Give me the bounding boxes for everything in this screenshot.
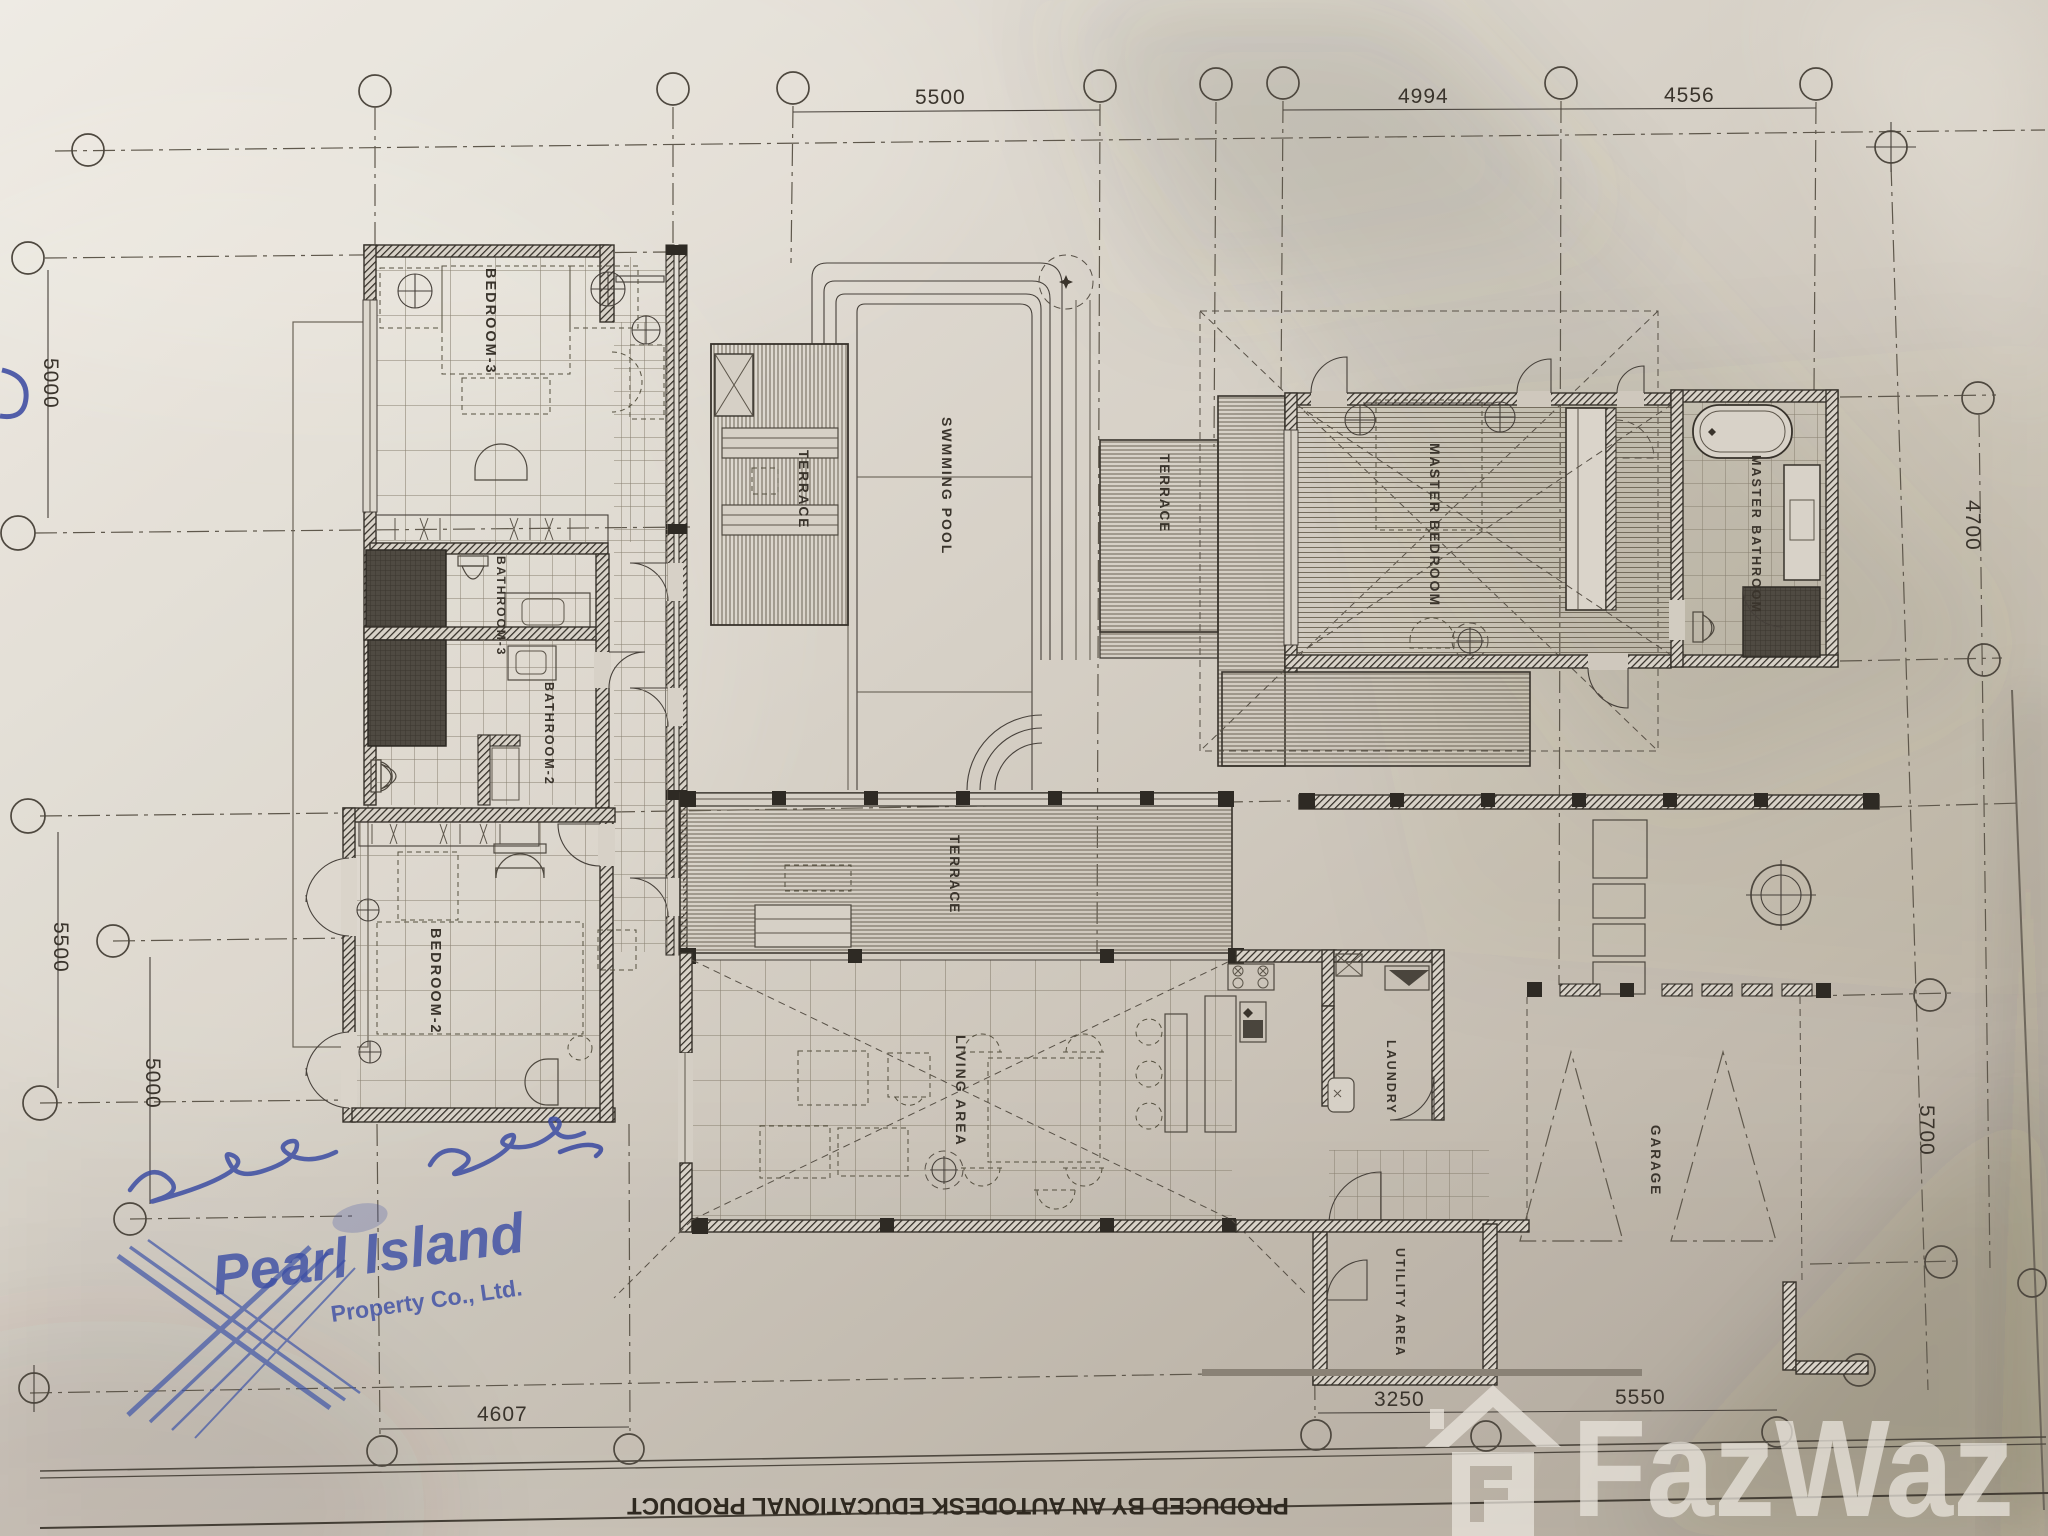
svg-text:TERRACE: TERRACE (1157, 454, 1172, 533)
svg-text:BATHROOM-3: BATHROOM-3 (494, 556, 508, 656)
svg-text:FazWaz: FazWaz (1572, 1392, 2014, 1536)
svg-text:5500: 5500 (915, 86, 966, 109)
svg-text:LAUNDRY: LAUNDRY (1384, 1040, 1398, 1115)
svg-text:4556: 4556 (1664, 84, 1715, 107)
svg-text:LIVING AREA: LIVING AREA (953, 1035, 969, 1147)
svg-text:UTILITY AREA: UTILITY AREA (1393, 1248, 1407, 1357)
svg-text:3250: 3250 (1374, 1388, 1425, 1411)
svg-text:MASTER BEDROOM: MASTER BEDROOM (1427, 443, 1443, 607)
svg-text:5500: 5500 (49, 922, 72, 973)
svg-text:BEDROOM-2: BEDROOM-2 (427, 928, 443, 1035)
svg-text:TERRACE: TERRACE (947, 835, 962, 914)
svg-text:5000: 5000 (39, 358, 62, 409)
svg-text:PRODUCED BY AN AUTODESK EDUCAT: PRODUCED BY AN AUTODESK EDUCATIONAL PROD… (627, 1492, 1289, 1519)
svg-text:TERRACE: TERRACE (796, 450, 811, 529)
svg-text:5700: 5700 (1915, 1105, 1938, 1156)
svg-text:GARAGE: GARAGE (1648, 1125, 1663, 1196)
svg-text:4994: 4994 (1398, 85, 1449, 108)
svg-text:5000: 5000 (141, 1058, 164, 1109)
svg-text:4700: 4700 (1961, 500, 1984, 551)
svg-text:4607: 4607 (477, 1403, 528, 1426)
svg-text:BATHROOM-2: BATHROOM-2 (542, 682, 556, 786)
svg-text:BEDROOM-3: BEDROOM-3 (482, 268, 498, 375)
svg-text:MASTER BATHROOM: MASTER BATHROOM (1749, 455, 1763, 614)
svg-text:SWMMING POOL: SWMMING POOL (939, 417, 955, 555)
